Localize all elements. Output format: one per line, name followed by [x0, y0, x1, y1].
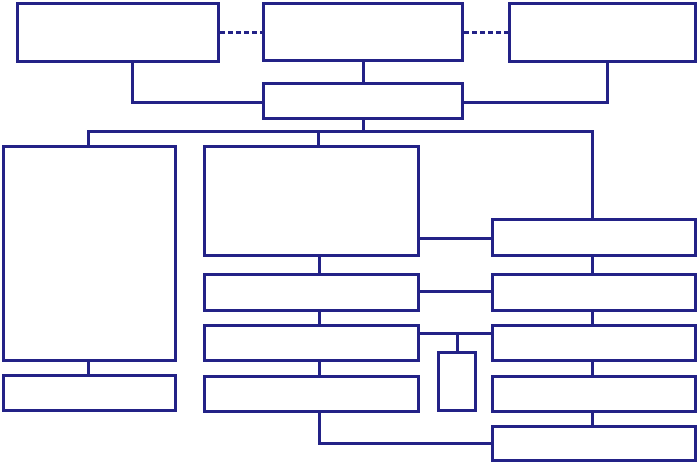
node-right-row-2-box [491, 273, 697, 312]
connector-branch-to-smallbox [456, 332, 459, 354]
connector-dashed-link-right [464, 31, 508, 34]
connector-mid-chain-2 [318, 311, 321, 326]
connector-right-chain-1 [591, 256, 594, 275]
node-mid-large-box [203, 145, 420, 257]
connector-bus-drop-middle [317, 130, 320, 148]
node-mid-row-3-box [203, 375, 420, 413]
connector-topright-to-hub-seg0 [606, 62, 609, 104]
node-mid-row-2-box [203, 324, 420, 362]
connector-mid1-to-right2 [419, 290, 493, 293]
connector-bus-drop-left [87, 130, 90, 148]
connector-right-chain-3 [591, 361, 594, 377]
connector-topleft-to-hub-seg1 [131, 101, 264, 104]
connector-bus-drop-right [591, 130, 594, 221]
connector-right-chain-4 [591, 412, 594, 427]
diagram-canvas [0, 0, 700, 465]
connector-midlarge-to-right1 [419, 237, 493, 240]
connector-lefttall-to-leftsmall [87, 361, 90, 376]
connector-topmiddle-to-hub [362, 61, 365, 84]
connector-distribution-bus [87, 130, 594, 133]
node-left-tall-box [2, 145, 177, 362]
node-top-right-box [508, 2, 697, 63]
connector-topright-to-hub-seg1 [463, 101, 609, 104]
node-top-middle-box [262, 2, 464, 62]
connector-mid3-to-right5-seg0 [318, 412, 321, 445]
node-right-row-1-box [491, 218, 697, 257]
connector-mid-chain-3 [318, 361, 321, 377]
connector-topleft-to-hub-seg0 [131, 62, 134, 104]
node-left-small-box [2, 374, 177, 412]
node-top-left-box [16, 2, 220, 63]
node-right-row-4-box [491, 375, 697, 413]
connector-dashed-link-left [220, 31, 262, 34]
node-right-row-3-box [491, 324, 697, 362]
node-small-vertical-box [437, 351, 477, 412]
node-hub-box [262, 82, 464, 120]
node-right-row-5-box [491, 425, 697, 462]
node-mid-row-1-box [203, 273, 420, 312]
connector-mid-chain-1 [318, 256, 321, 275]
connector-right-chain-2 [591, 311, 594, 326]
connector-mid3-to-right5-seg1 [318, 442, 493, 445]
